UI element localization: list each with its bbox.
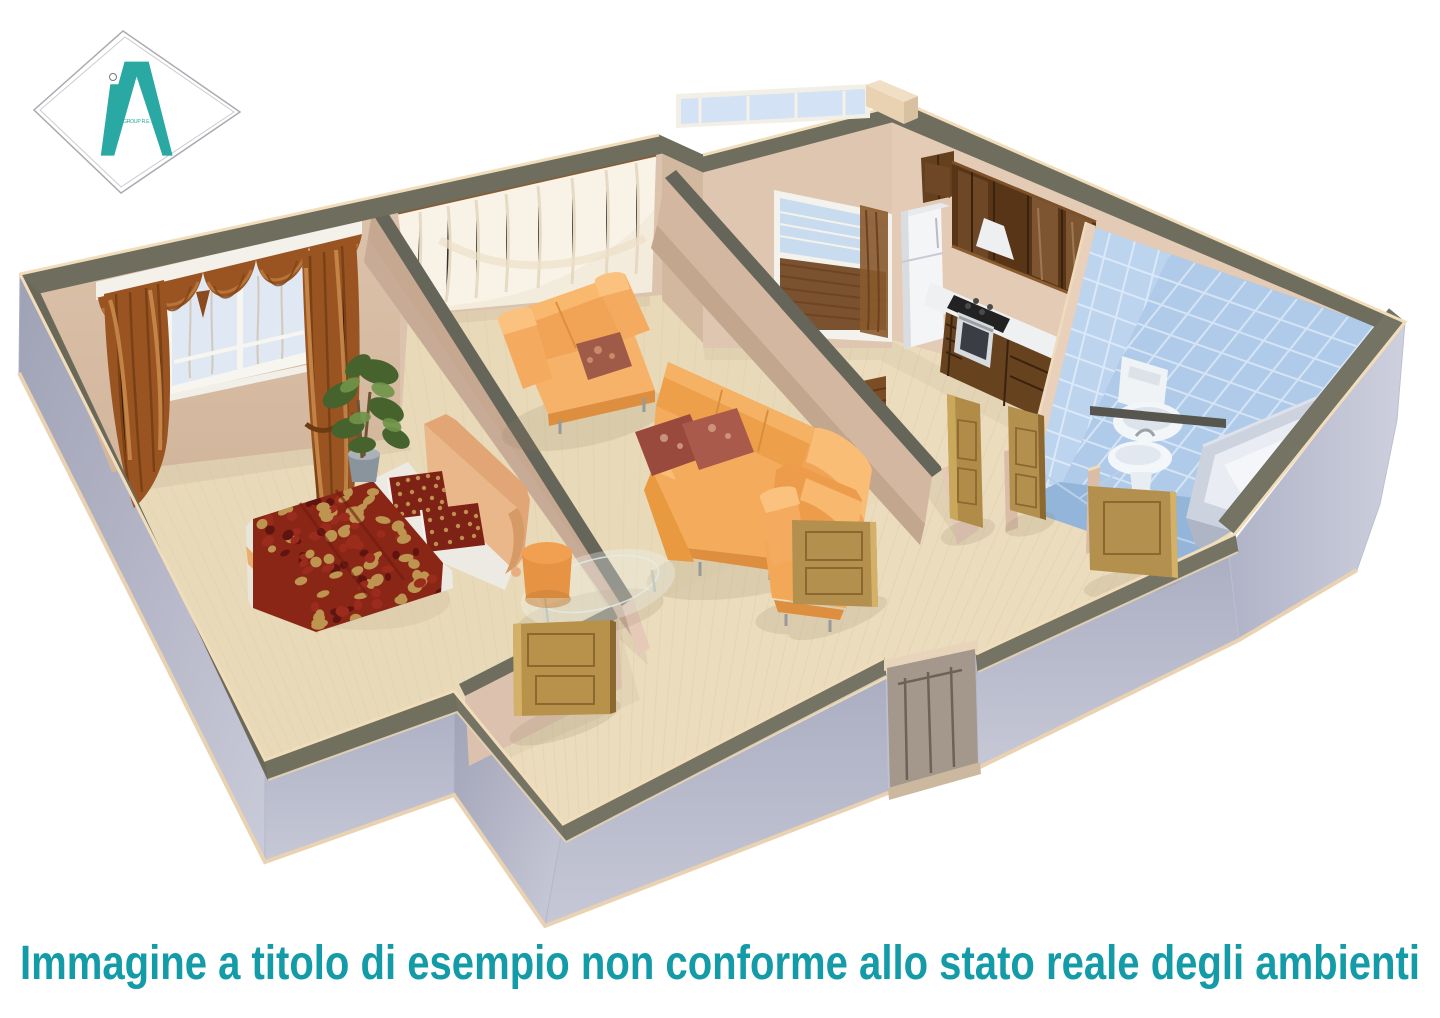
- svg-text:GROUP R.E.: GROUP R.E.: [123, 119, 150, 125]
- svg-text:Immagine a titolo di esempio n: Immagine a titolo di esempio non conform…: [20, 937, 1420, 990]
